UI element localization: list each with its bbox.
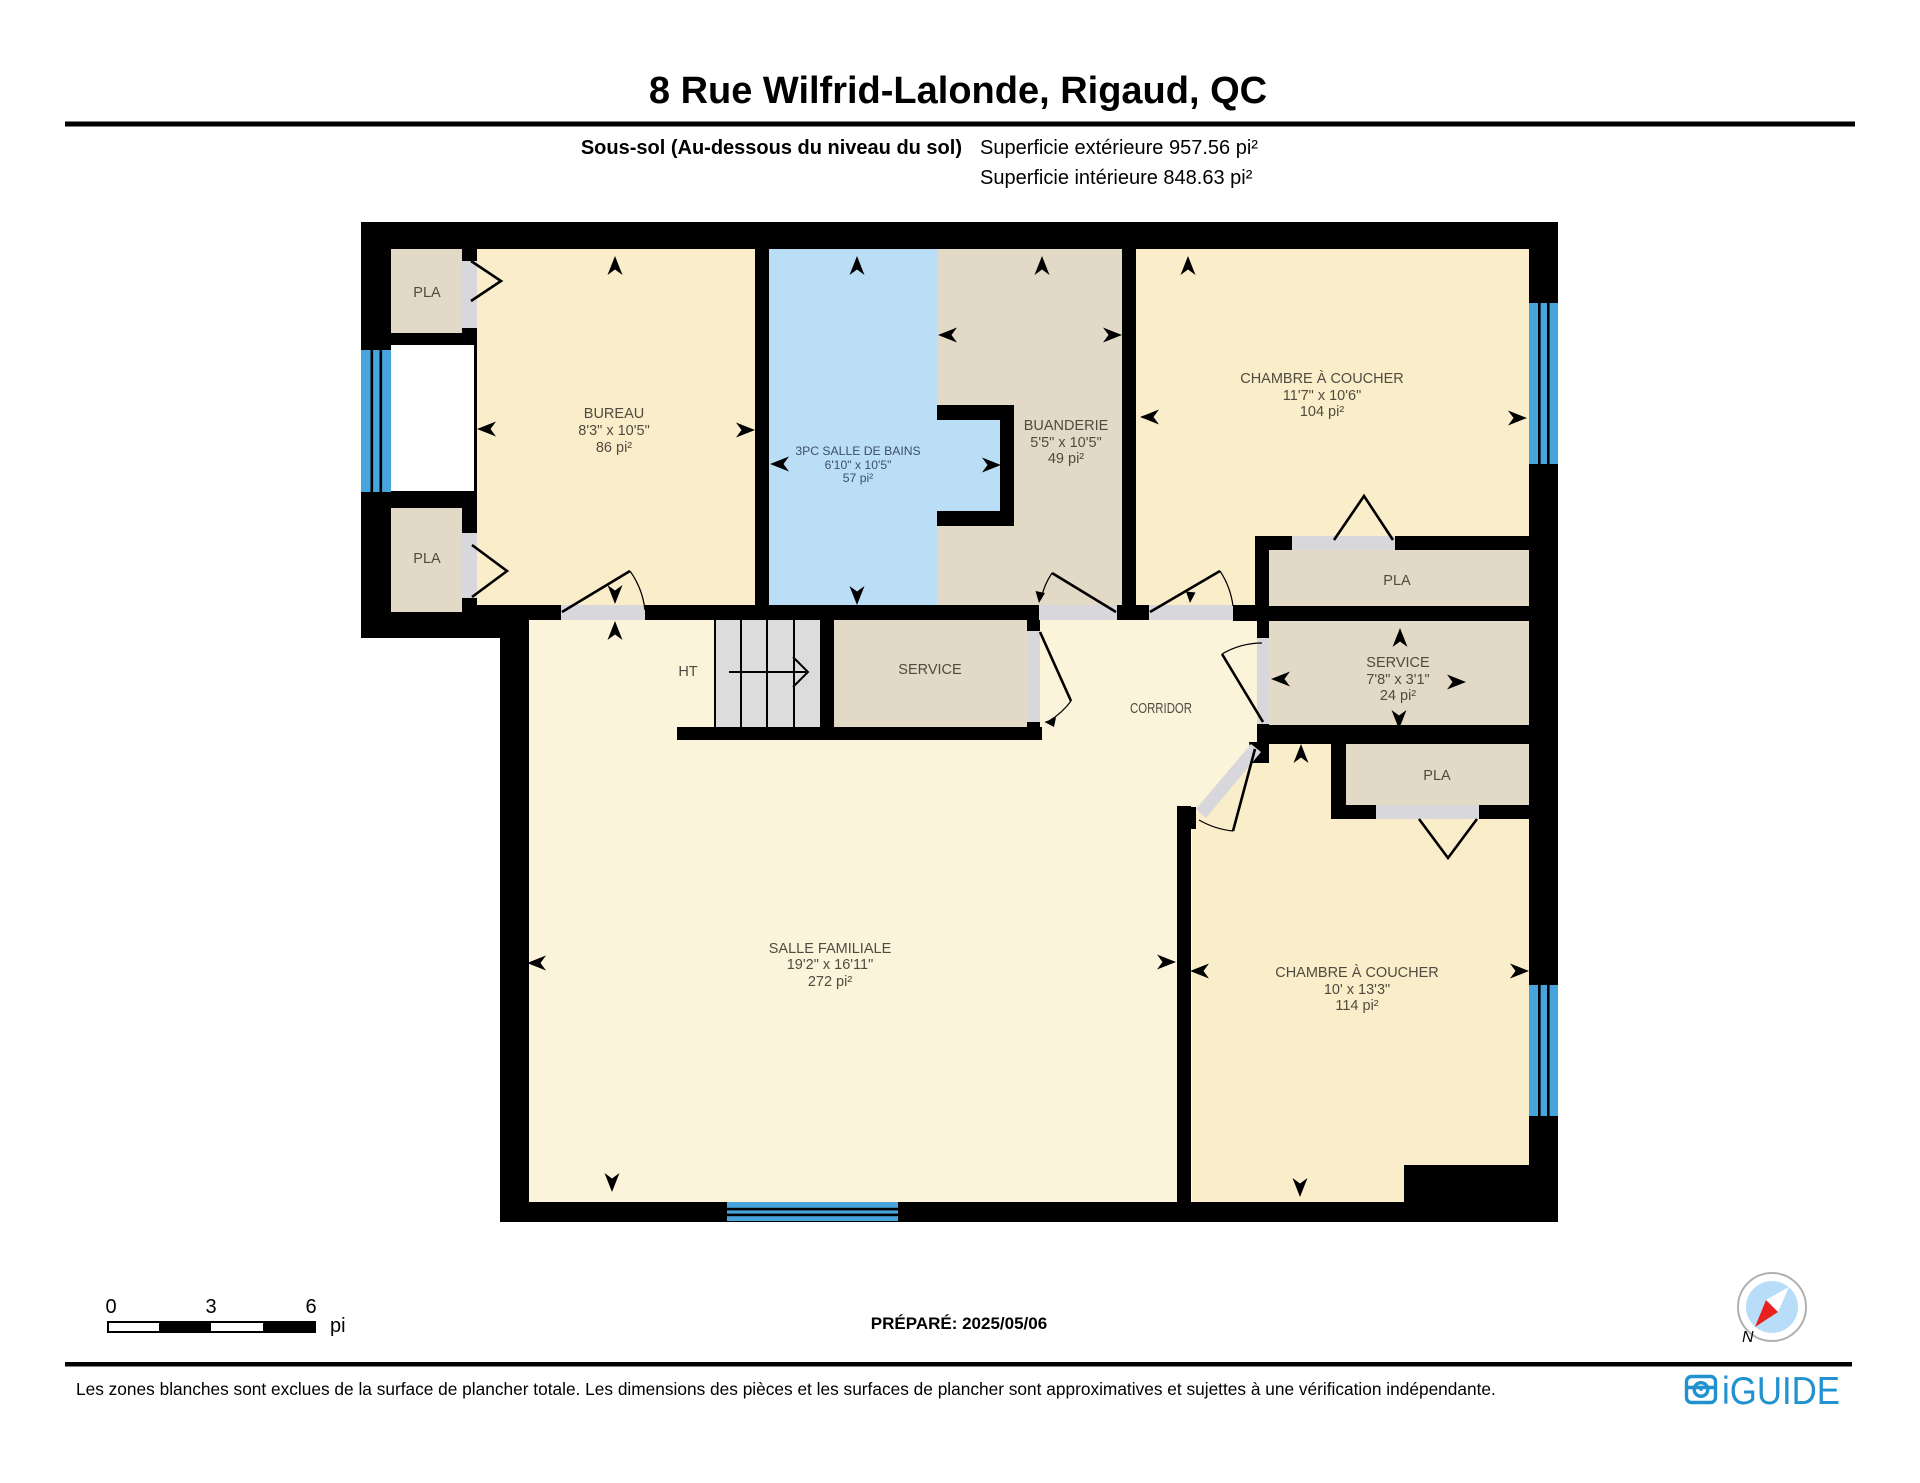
- svg-text:8 Rue Wilfrid-Lalonde, Rigaud,: 8 Rue Wilfrid-Lalonde, Rigaud, QC: [649, 70, 1267, 112]
- svg-text:CORRIDOR: CORRIDOR: [1130, 701, 1192, 717]
- svg-text:Superficie extérieure 957.56 p: Superficie extérieure 957.56 pi²: [980, 137, 1258, 159]
- svg-text:BUANDERIE: BUANDERIE: [1024, 418, 1109, 434]
- svg-text:CHAMBRE À COUCHER: CHAMBRE À COUCHER: [1275, 964, 1439, 981]
- svg-text:6: 6: [305, 1296, 316, 1318]
- svg-text:Sous-sol (Au-dessous du niveau: Sous-sol (Au-dessous du niveau du sol): [581, 137, 962, 159]
- svg-text:104 pi²: 104 pi²: [1300, 404, 1345, 420]
- svg-text:11'7" x 10'6": 11'7" x 10'6": [1283, 388, 1361, 404]
- svg-text:24 pi²: 24 pi²: [1380, 688, 1416, 704]
- svg-text:HT: HT: [678, 664, 697, 680]
- svg-text:57 pi²: 57 pi²: [843, 471, 874, 485]
- svg-text:0: 0: [105, 1296, 116, 1318]
- svg-text:114 pi²: 114 pi²: [1335, 998, 1378, 1014]
- svg-text:Les zones blanches sont exclue: Les zones blanches sont exclues de la su…: [76, 1379, 1496, 1399]
- svg-text:PLA: PLA: [413, 551, 441, 567]
- svg-text:19'2" x 16'11": 19'2" x 16'11": [787, 957, 874, 973]
- svg-text:Superficie intérieure 848.63 p: Superficie intérieure 848.63 pi²: [980, 167, 1253, 189]
- svg-text:BUREAU: BUREAU: [584, 406, 644, 422]
- svg-text:272 pi²: 272 pi²: [808, 974, 853, 990]
- svg-text:SALLE FAMILIALE: SALLE FAMILIALE: [769, 941, 892, 957]
- svg-text:3PC SALLE DE BAINS: 3PC SALLE DE BAINS: [795, 444, 920, 458]
- svg-text:49 pi²: 49 pi²: [1048, 451, 1084, 467]
- svg-text:PRÉPARÉ: 2025/05/06: PRÉPARÉ: 2025/05/06: [871, 1314, 1047, 1333]
- svg-text:5'5" x 10'5": 5'5" x 10'5": [1030, 435, 1101, 451]
- svg-text:PLA: PLA: [1423, 768, 1451, 784]
- svg-text:SERVICE: SERVICE: [898, 662, 962, 678]
- svg-text:CHAMBRE À COUCHER: CHAMBRE À COUCHER: [1240, 370, 1404, 387]
- svg-text:7'8" x 3'1": 7'8" x 3'1": [1366, 672, 1429, 688]
- svg-text:N: N: [1742, 1329, 1754, 1346]
- svg-text:iGUIDE: iGUIDE: [1722, 1370, 1840, 1413]
- svg-text:6'10" x 10'5": 6'10" x 10'5": [825, 458, 892, 472]
- svg-text:PLA: PLA: [1383, 573, 1411, 589]
- svg-text:8'3" x 10'5": 8'3" x 10'5": [578, 423, 649, 439]
- svg-text:SERVICE: SERVICE: [1366, 655, 1430, 671]
- svg-text:86 pi²: 86 pi²: [596, 440, 632, 456]
- svg-text:10' x 13'3": 10' x 13'3": [1324, 982, 1390, 998]
- svg-text:PLA: PLA: [413, 285, 441, 301]
- svg-text:3: 3: [205, 1296, 216, 1318]
- svg-text:pi: pi: [330, 1315, 346, 1337]
